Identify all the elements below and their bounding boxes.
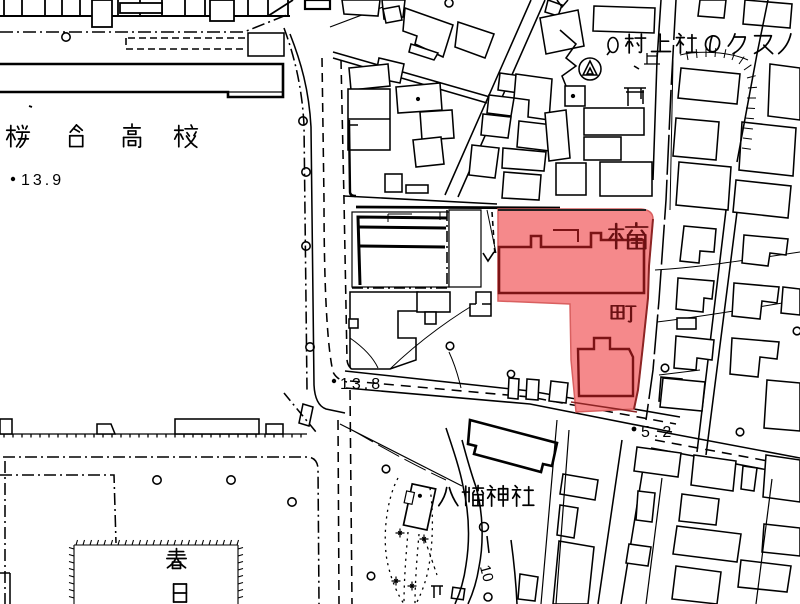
svg-text:5.2: 5.2 xyxy=(641,424,675,441)
svg-text:13.8: 13.8 xyxy=(340,376,383,393)
svg-text:13.9: 13.9 xyxy=(21,172,64,189)
